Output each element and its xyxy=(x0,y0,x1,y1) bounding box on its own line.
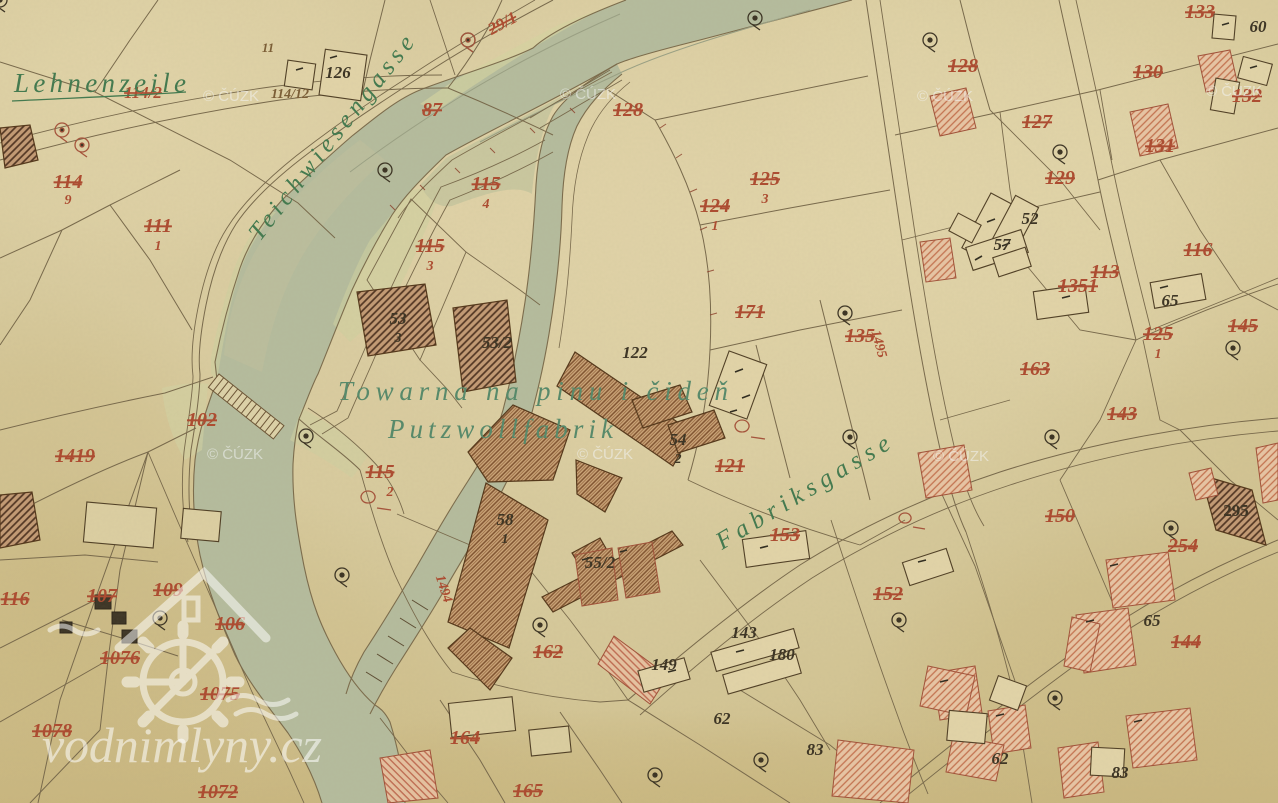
svg-text:© ČÚZK: © ČÚZK xyxy=(933,448,989,465)
svg-text:© ČÚZK: © ČÚZK xyxy=(203,88,259,105)
svg-text:© ČÚZK: © ČÚZK xyxy=(560,86,616,103)
svg-text:vodnimlyny.cz: vodnimlyny.cz xyxy=(42,717,322,773)
svg-text:© ČÚZK: © ČÚZK xyxy=(577,446,633,463)
svg-text:© ČÚZK: © ČÚZK xyxy=(1206,83,1262,100)
svg-text:© ČÚZK: © ČÚZK xyxy=(917,88,973,105)
svg-text:© ČÚZK: © ČÚZK xyxy=(207,446,263,463)
